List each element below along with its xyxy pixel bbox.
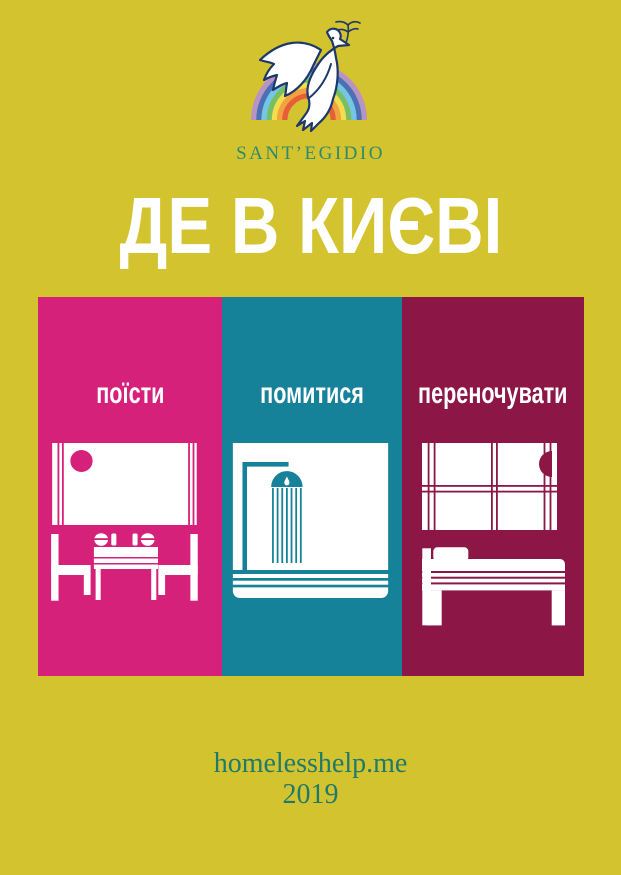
category-panels: поїсти	[38, 297, 584, 676]
bed-icon	[402, 297, 584, 676]
panel-wash: помитися	[222, 297, 402, 676]
page-title: ДЕ В КИЄВІ	[0, 184, 621, 268]
shower-icon	[222, 297, 402, 676]
dining-table-icon	[38, 297, 222, 676]
year: 2019	[0, 779, 621, 810]
org-name: SANT’EGIDIO	[0, 143, 621, 165]
dove-rainbow-icon	[243, 14, 377, 134]
footer: homelesshelp.me 2019	[0, 748, 621, 810]
website-url: homelesshelp.me	[0, 748, 621, 779]
poster-page: SANT’EGIDIO ДЕ В КИЄВІ поїсти	[0, 0, 621, 875]
panel-sleep: переночувати	[402, 297, 584, 676]
panel-eat: поїсти	[38, 297, 222, 676]
